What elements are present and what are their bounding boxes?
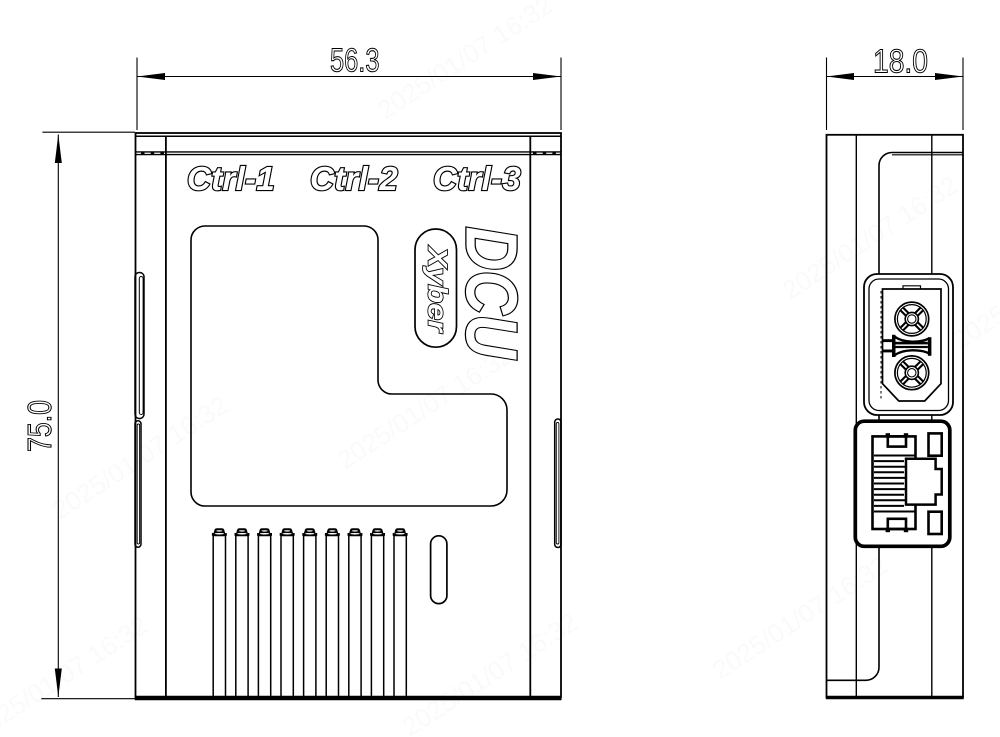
svg-text:Ctrl-2: Ctrl-2 — [310, 160, 398, 197]
svg-text:56.3: 56.3 — [330, 42, 380, 79]
svg-text:18.0: 18.0 — [873, 43, 928, 80]
svg-text:Ctrl-3: Ctrl-3 — [433, 160, 521, 197]
svg-text:Ctrl-1: Ctrl-1 — [187, 160, 275, 197]
svg-text:75.0: 75.0 — [21, 400, 58, 452]
svg-text:Xyber: Xyber — [423, 245, 453, 334]
svg-text:DCU: DCU — [451, 227, 531, 361]
